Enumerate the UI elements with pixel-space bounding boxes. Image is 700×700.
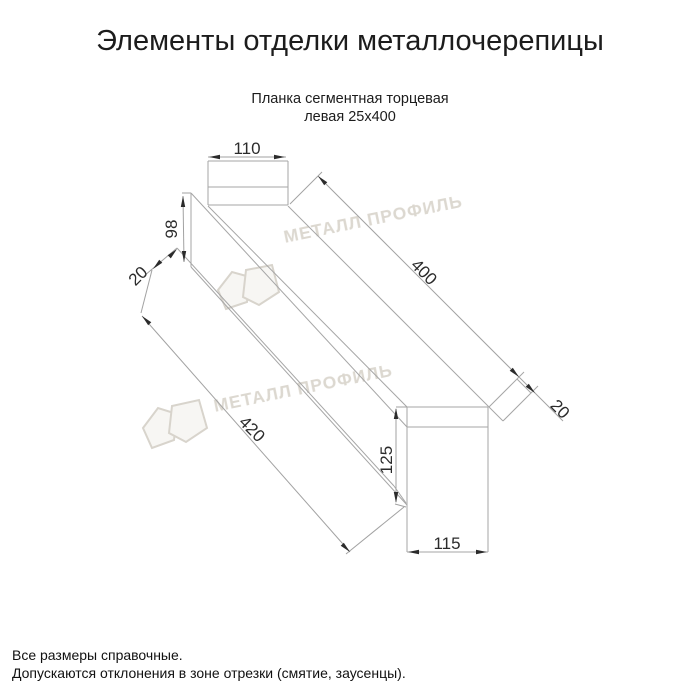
- footer-note-1: Все размеры справочные.: [12, 646, 406, 664]
- part-subtitle-line1: Планка сегментная торцевая: [0, 91, 700, 109]
- dim-125-label: 125: [377, 446, 396, 474]
- dim-20-right: 20: [526, 384, 574, 423]
- top-flange-end-face: [208, 161, 288, 205]
- footer-notes: Все размеры справочные. Допускаются откл…: [12, 646, 406, 682]
- part-subtitle: Планка сегментная торцевая левая 25х400: [0, 91, 700, 126]
- part-subtitle-line2: левая 25х400: [0, 109, 700, 127]
- far-end-face: [407, 407, 488, 552]
- drawing-page: МЕТАЛЛ ПРОФИЛЬ МЕТАЛЛ ПРОФИЛЬ: [0, 0, 700, 700]
- dim-420-label: 420: [235, 412, 268, 445]
- dim-98: 98: [162, 193, 191, 262]
- dim-20-right-label: 20: [546, 396, 573, 423]
- strip-long-edges: [177, 193, 489, 505]
- dim-20-left-label: 20: [125, 263, 152, 290]
- page-title: Элементы отделки металлочерепицы: [0, 25, 700, 58]
- far-end-flange: [489, 372, 538, 421]
- footer-note-2: Допускаются отклонения в зоне отрезки (с…: [12, 664, 406, 682]
- dim-400-label: 400: [407, 255, 440, 288]
- dim-115: 115: [408, 534, 487, 554]
- dim-110: 110: [208, 139, 286, 159]
- dim-98-label: 98: [162, 220, 181, 239]
- dim-115-label: 115: [433, 534, 460, 553]
- dim-110-label: 110: [233, 139, 260, 158]
- metall-profil-logo-icon-2: [143, 400, 207, 448]
- dim-20-left: 20: [125, 248, 177, 290]
